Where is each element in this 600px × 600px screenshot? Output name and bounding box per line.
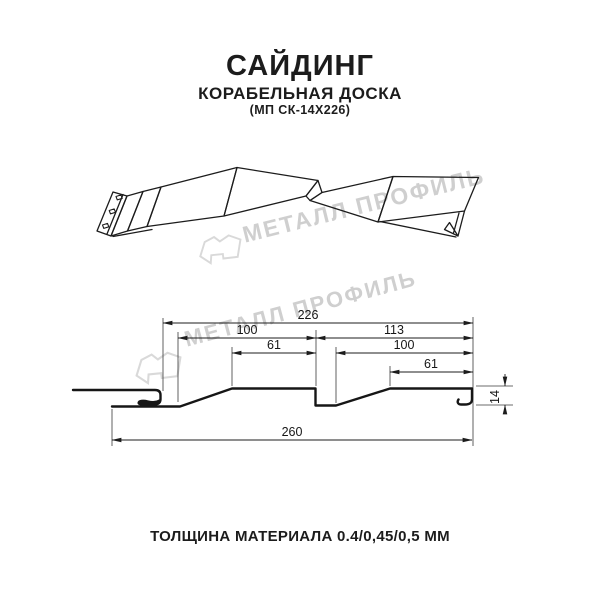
product-title: САЙДИНГ bbox=[0, 50, 600, 83]
dim-label-61-left: 61 bbox=[267, 338, 281, 352]
extension-lines bbox=[112, 317, 513, 446]
dimension-labels: 226 100 113 61 100 61 260 14 bbox=[237, 308, 502, 439]
dim-label-14: 14 bbox=[488, 390, 502, 404]
lock-fold bbox=[128, 187, 162, 231]
profile-3d-drawing bbox=[97, 168, 479, 238]
dim-label-61-right: 61 bbox=[424, 357, 438, 371]
dim-label-100-left: 100 bbox=[237, 323, 258, 337]
product-subtitle: КОРАБЕЛЬНАЯ ДОСКА bbox=[0, 84, 600, 104]
cross-section-drawing: 226 100 113 61 100 61 260 14 bbox=[73, 308, 513, 446]
material-thickness-note: ТОЛЩИНА МАТЕРИАЛА 0.4/0,45/0,5 ММ bbox=[0, 528, 600, 545]
lock-hem-fold bbox=[138, 400, 159, 406]
dimension-lines bbox=[112, 323, 505, 440]
board1-top-face bbox=[224, 168, 318, 217]
dim-label-226: 226 bbox=[298, 308, 319, 322]
dim-label-100-right: 100 bbox=[394, 338, 415, 352]
profile-outline bbox=[73, 389, 472, 407]
dim-label-260: 260 bbox=[282, 425, 303, 439]
dim-label-113: 113 bbox=[384, 323, 404, 337]
profile-body bbox=[112, 389, 472, 407]
product-diagram-page: МЕТАЛЛ ПРОФИЛЬ МЕТАЛЛ ПРОФИЛЬ bbox=[0, 0, 600, 600]
board1-slope-face bbox=[147, 168, 237, 227]
model-code: (МП СК-14Х226) bbox=[0, 103, 600, 117]
